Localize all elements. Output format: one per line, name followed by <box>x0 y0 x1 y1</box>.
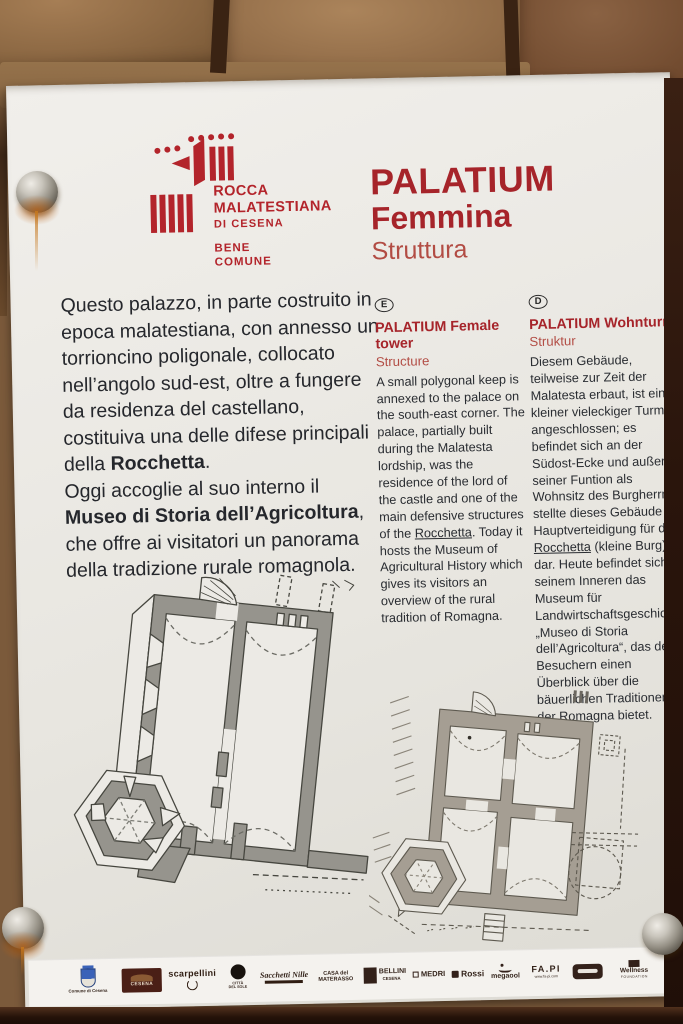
underline-rocchetta: Rocchetta <box>415 525 472 540</box>
bold-museo: Museo di Storia dell’Agricoltura <box>65 501 359 529</box>
photo-of-sign: ROCCA MALATESTIANA DI CESENA BENE COMUNE… <box>0 0 683 1024</box>
rust-drip <box>21 947 24 975</box>
rocca-logo-text: ROCCA MALATESTIANA DI CESENA BENE COMUNE <box>213 181 333 270</box>
underline-rocchetta: Rocchetta <box>534 540 591 555</box>
english-heading: PALATIUM Female tower <box>375 317 525 353</box>
sponsor-label: MEDRI <box>421 970 445 978</box>
floor-plan-small <box>365 677 661 951</box>
sofa-box-icon <box>572 963 602 979</box>
title-struttura: Struttura <box>371 234 556 267</box>
sponsor-logo-citta-del-sole: CITTÀ DEL SOLE <box>223 964 254 992</box>
sponsor-label: CESENA <box>130 981 153 986</box>
logo-name-line: MALATESTIANA <box>213 198 331 217</box>
wall-shadow-right <box>664 78 683 1024</box>
sponsor-caption: CESENA <box>383 977 403 982</box>
language-badge-english: E <box>375 298 394 312</box>
square-icon <box>413 972 419 978</box>
stone-joint <box>503 0 520 85</box>
english-text: E PALATIUM Female tower Structure A smal… <box>374 291 530 627</box>
rust-drip <box>35 211 38 271</box>
underline-bar <box>265 980 303 983</box>
swimmer-icon <box>499 966 512 972</box>
sponsor-label: FA.PI <box>531 964 561 974</box>
sofa-shape-icon <box>578 969 598 974</box>
sponsor-label: megaool <box>491 972 520 980</box>
title-palatium: PALATIUM <box>370 161 555 202</box>
sponsor-logo-wellness: Wellness FOUNDATION <box>609 959 659 981</box>
language-badge-german: D <box>528 295 547 309</box>
sponsor-logo-bellini: BELLINI CESENA <box>364 967 407 984</box>
cesena-box-icon: CESENA <box>121 968 161 993</box>
sponsor-label: Rossi <box>461 969 484 978</box>
title-femmina: Femmina <box>370 197 555 235</box>
sponsor-logo-megaool: megaool <box>491 966 520 980</box>
sponsor-caption: www.fa-pi.com <box>535 974 558 978</box>
sponsor-logo-sacchetti: Sacchetti Nille <box>260 971 308 984</box>
sponsor-label: Wellness <box>620 967 648 974</box>
swirl-icon <box>187 979 198 990</box>
sponsor-logo-rossi: Rossi <box>452 969 484 978</box>
page-title: PALATIUM Femmina Struttura <box>370 161 557 267</box>
sponsor-logo-casa-del-materasso: CASA del MATERASSO <box>315 969 357 984</box>
sponsor-logo-sofa-mark <box>572 963 602 979</box>
logo-name-line: DI CESENA <box>214 215 332 232</box>
sponsor-label: CITTÀ DEL SOLE <box>229 982 248 990</box>
german-heading: PALATIUM Wohnturm <box>529 314 680 333</box>
sponsor-logo-scarpellini: scarpellini <box>168 968 216 990</box>
bellini-box-icon <box>364 967 377 983</box>
sun-circle-icon <box>230 964 245 979</box>
english-body: A small polygonal keep is annexed to the… <box>376 371 530 627</box>
sponsor-caption: FOUNDATION <box>621 975 648 979</box>
sponsor-label: BELLINI <box>379 968 406 976</box>
italian-text: Questo palazzo, in parte costruito in ep… <box>60 286 386 584</box>
sponsor-logo-cesena: CESENA <box>121 968 161 993</box>
sponsor-label: CASA del MATERASSO <box>318 970 354 983</box>
sponsor-label: scarpellini <box>168 968 216 978</box>
sponsor-logo-comune-di-cesena: Comune di Cesena <box>61 968 116 995</box>
english-subheading: Structure <box>376 351 525 369</box>
italian-paragraph-1: Questo palazzo, in parte costruito in ep… <box>60 286 384 478</box>
sponsor-logo-fapi: FA.PI www.fa-pi.com <box>527 964 566 980</box>
german-body: Diesem Gebäude, teilweise zur Zeit der M… <box>530 351 683 726</box>
block-icon <box>628 960 639 967</box>
mounting-bolt-top-left <box>16 171 58 213</box>
arch-icon <box>131 974 153 981</box>
wall-shadow-bottom <box>0 1007 683 1024</box>
information-sign: ROCCA MALATESTIANA DI CESENA BENE COMUNE… <box>6 72 683 1010</box>
sponsor-strip: Comune di Cesena CESENA scarpellini CITT… <box>28 946 683 1007</box>
square-icon <box>452 970 459 977</box>
mounting-bolt-bottom-left <box>2 907 44 949</box>
sponsor-label: Sacchetti Nille <box>260 971 308 980</box>
logo-motto-line: COMUNE <box>215 253 333 270</box>
sponsor-label: Comune di Cesena <box>69 989 108 994</box>
mounting-bolt-bottom-right <box>642 913 683 955</box>
floor-plan-large <box>64 554 384 944</box>
sponsor-logo-medri: MEDRI <box>413 970 445 978</box>
german-text: D PALATIUM Wohnturm Struktur Diesem Gebä… <box>528 288 683 726</box>
comune-crest-icon <box>80 968 95 987</box>
bold-rocchetta: Rocchetta <box>110 451 205 475</box>
german-subheading: Struktur <box>529 331 680 349</box>
